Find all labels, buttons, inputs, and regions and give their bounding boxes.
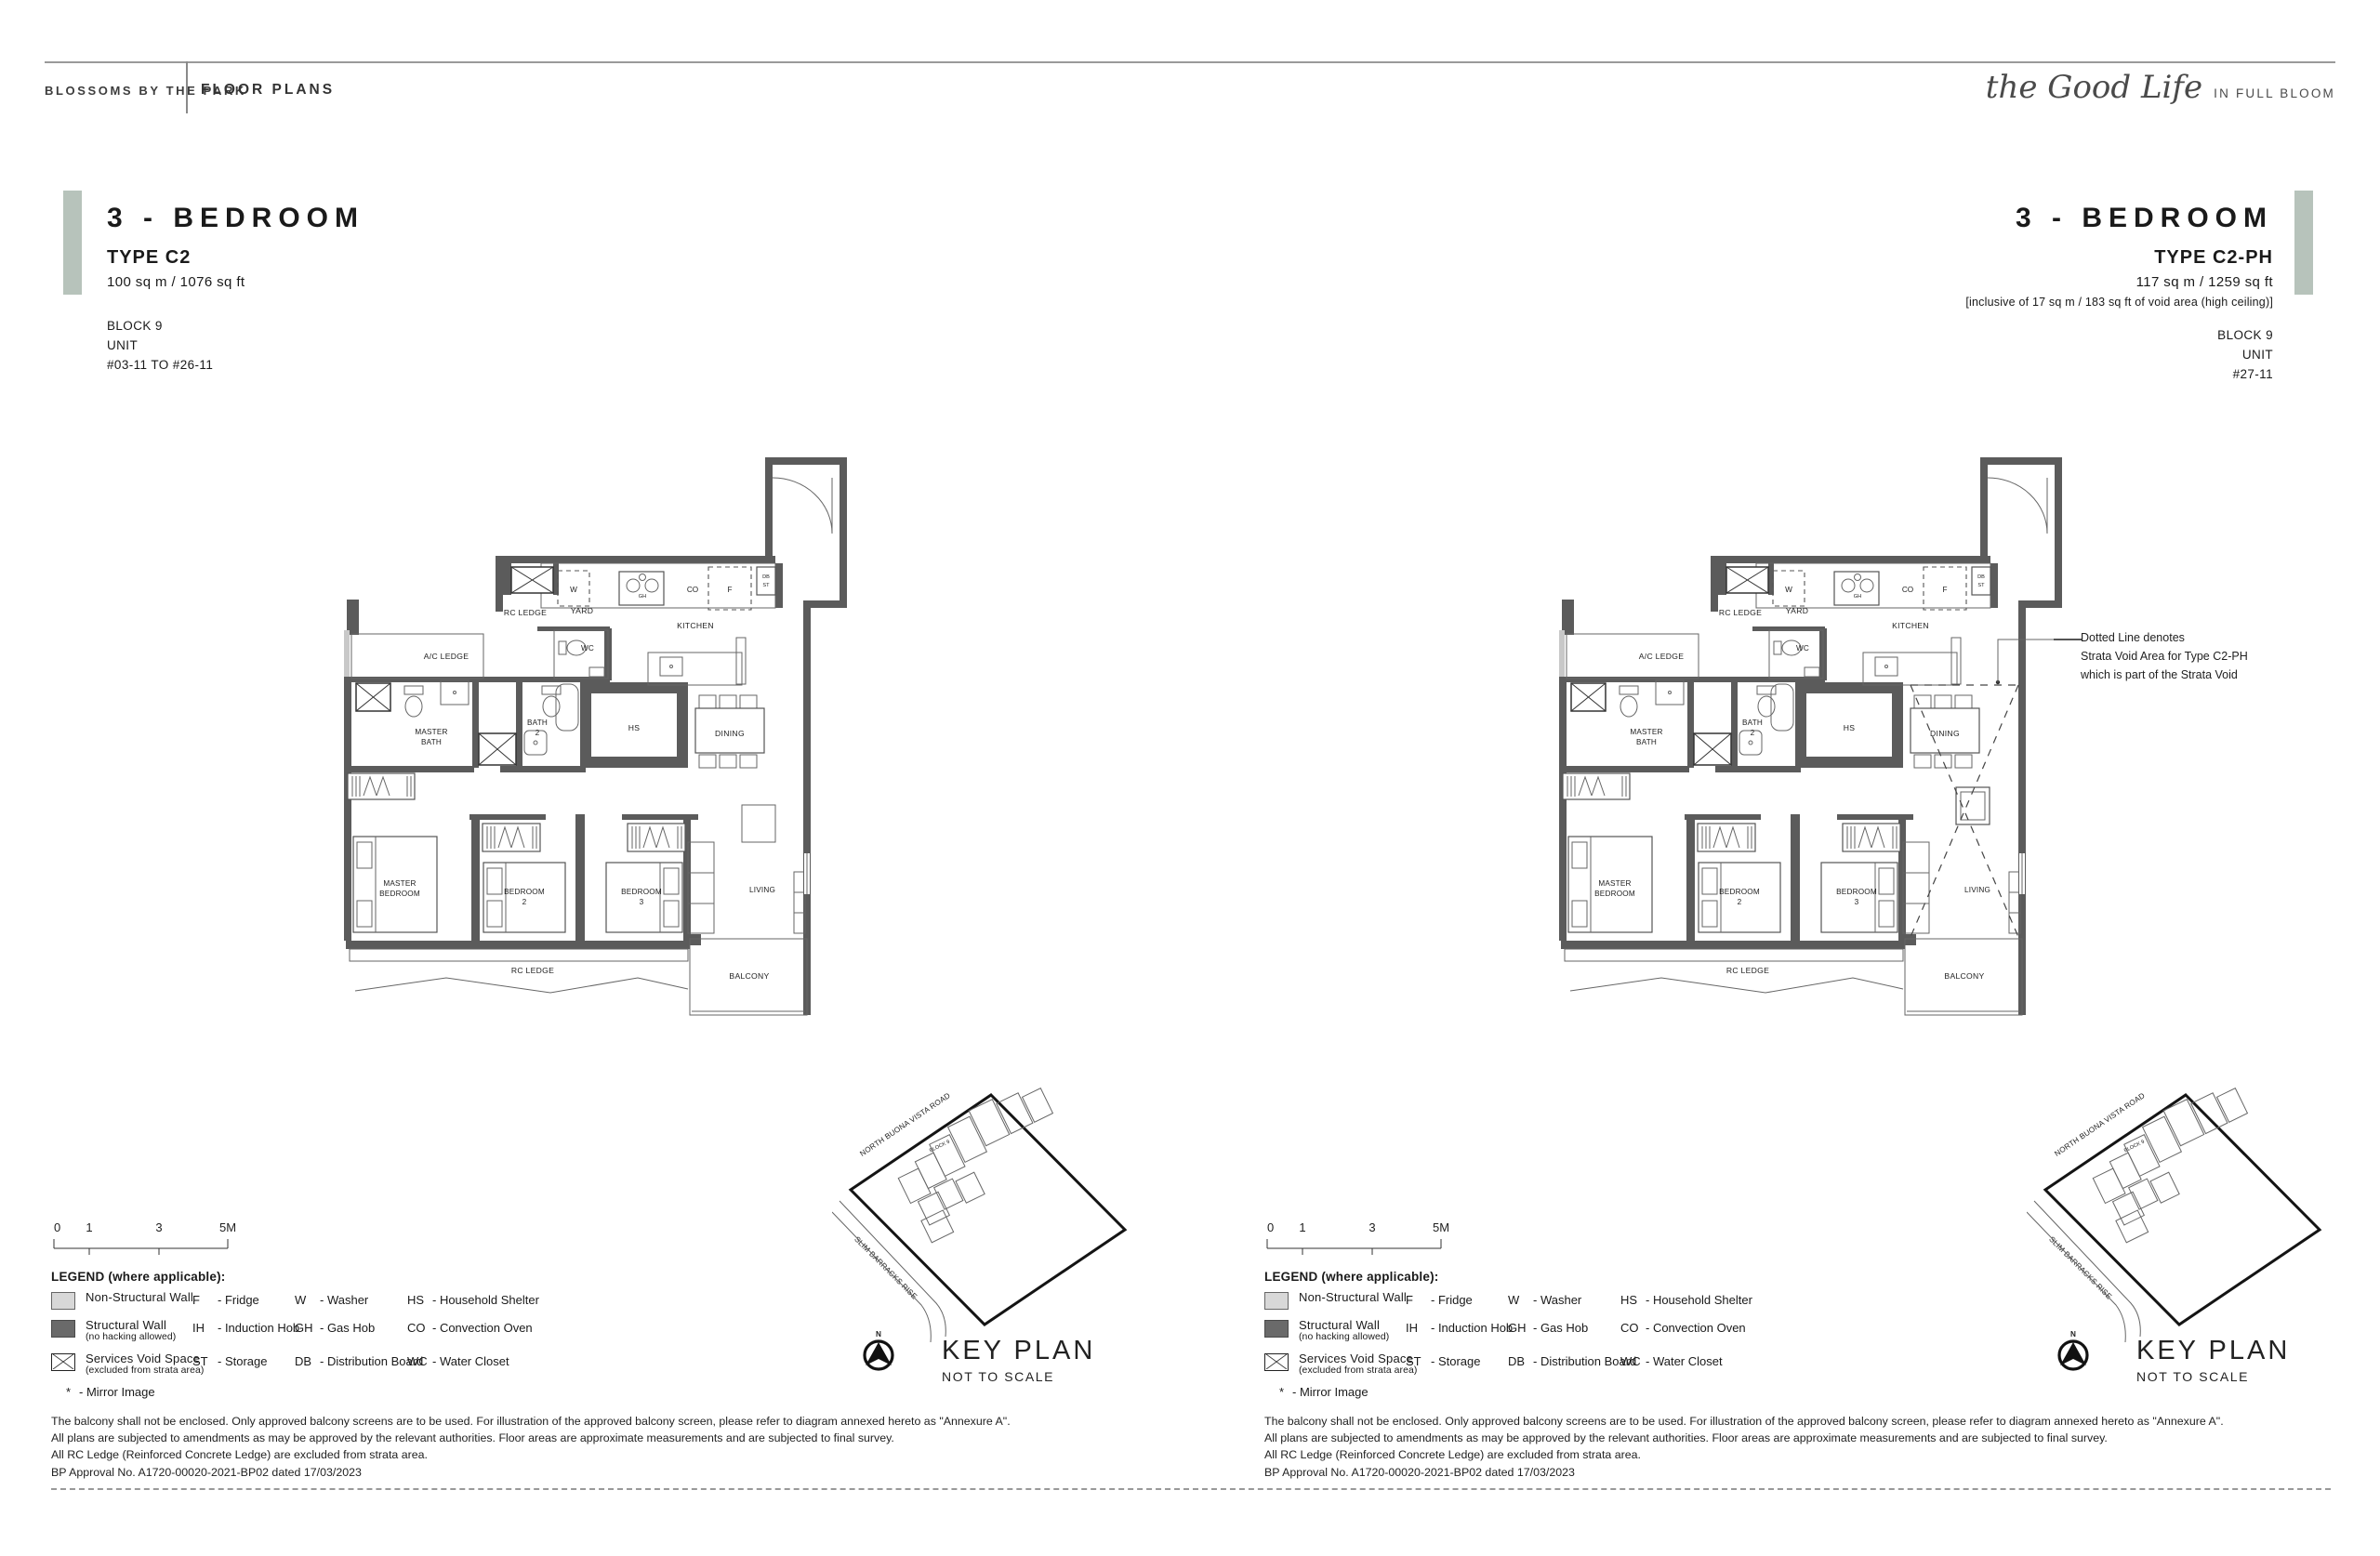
legend: Non-Structural WallStructural Wall(no ha… xyxy=(1264,1292,1785,1413)
appliance-washer: W xyxy=(570,586,577,594)
disclaimer-line: The balcony shall not be enclosed. Only … xyxy=(1264,1413,2361,1430)
key-plan: BLOCK 9NORTH BUONA VISTA ROADSLIM BARRAC… xyxy=(832,1060,1148,1422)
legend-abbr-st: ST- Storage xyxy=(1406,1354,1480,1368)
legend-label: Structural Wall(no hacking allowed) xyxy=(86,1318,176,1342)
appliance-db: DB xyxy=(762,574,770,580)
scale-label: 3 xyxy=(155,1220,162,1234)
room-label-yard: YARD xyxy=(1786,606,1808,615)
disclaimer-line: All plans are subjected to amendments as… xyxy=(1264,1430,2361,1446)
appliance-gas-hob: GH xyxy=(639,594,646,600)
legend-abbr-db: DB- Distribution Board xyxy=(295,1354,423,1368)
room-label-bedroom-2: BEDROOM xyxy=(504,888,545,896)
disclaimer: The balcony shall not be enclosed. Only … xyxy=(1264,1413,2361,1481)
structural-wall-swatch xyxy=(51,1320,75,1338)
room-label-bedroom-3: 3 xyxy=(1855,898,1859,906)
room-label-living: LIVING xyxy=(1964,886,1990,894)
north-compass-icon xyxy=(2059,1341,2087,1369)
unit-range: #27-11 xyxy=(2217,364,2273,384)
area-label: 117 sq m / 1259 sq ft xyxy=(2136,274,2273,290)
non-structural-wall-swatch xyxy=(51,1292,75,1310)
room-label-wc: WC xyxy=(1796,644,1809,653)
room-label-yard: YARD xyxy=(571,606,593,615)
legend-label: Services Void Space(excluded from strata… xyxy=(86,1352,204,1376)
floor-plan-type-c2: WGHCOFDBSTRC LEDGEYARDKITCHENWCA/C LEDGE… xyxy=(342,455,863,1032)
legend-abbr-hs: HS- Household Shelter xyxy=(407,1293,539,1307)
panel-type-c2: 3 - BEDROOM TYPE C2 100 sq m / 1076 sq f… xyxy=(37,0,1125,1556)
appliance-db: DB xyxy=(1977,574,1985,580)
room-label-dining: DINING xyxy=(715,729,745,738)
appliance-fridge: F xyxy=(727,586,732,594)
appliance-gas-hob: GH xyxy=(1854,594,1861,600)
legend-abbr-wc: WC- Water Closet xyxy=(407,1354,509,1368)
room-label-kitchen: KITCHEN xyxy=(1892,621,1929,630)
disclaimer-line: BP Approval No. A1720-00020-2021-BP02 da… xyxy=(51,1464,1148,1481)
appliance-convection-oven: CO xyxy=(687,586,698,594)
type-label: TYPE C2-PH xyxy=(2154,247,2273,269)
type-label: TYPE C2 xyxy=(107,247,191,269)
legend-mirror-image: *- Mirror Image xyxy=(66,1385,155,1399)
scale-label: 0 xyxy=(1267,1220,1274,1234)
appliance-convection-oven: CO xyxy=(1902,586,1913,594)
strata-note-line: Strata Void Area for Type C2-PH xyxy=(2081,647,2248,666)
key-plan: BLOCK 9NORTH BUONA VISTA ROADSLIM BARRAC… xyxy=(2027,1060,2343,1422)
appliance-washer: W xyxy=(1785,586,1792,594)
appliance-fridge: F xyxy=(1942,586,1947,594)
strata-note-line: which is part of the Strata Void xyxy=(2081,666,2248,684)
room-label-master-bath: MASTER xyxy=(1630,728,1662,736)
strata-void-dashed-area xyxy=(1911,640,2074,937)
structural-wall-swatch xyxy=(1264,1320,1289,1338)
legend-abbr-st: ST- Storage xyxy=(192,1354,267,1368)
legend-abbr-ih: IH- Induction Hob xyxy=(1406,1321,1513,1335)
room-label-rc-ledge-bottom: RC LEDGE xyxy=(511,966,554,975)
unit-range: #03-11 TO #26-11 xyxy=(107,355,213,375)
compass-north-label: N xyxy=(2070,1330,2076,1338)
strata-note-line: Dotted Line denotes xyxy=(2081,628,2248,647)
page-title: 3 - BEDROOM xyxy=(2016,203,2273,234)
legend-abbr-f: F- Fridge xyxy=(192,1293,259,1307)
room-label-master-bath: MASTER xyxy=(415,728,447,736)
legend-label: Services Void Space(excluded from strata… xyxy=(1299,1352,1417,1376)
room-label-master-bedroom: BEDROOM xyxy=(1594,890,1635,898)
disclaimer-line: All plans are subjected to amendments as… xyxy=(51,1430,1148,1446)
north-compass-icon xyxy=(865,1341,892,1369)
disclaimer-line: The balcony shall not be enclosed. Only … xyxy=(51,1413,1148,1430)
room-label-living: LIVING xyxy=(749,886,775,894)
legend-abbr-ih: IH- Induction Hob xyxy=(192,1321,299,1335)
scale-label: 1 xyxy=(1299,1220,1305,1234)
accent-bar xyxy=(2294,191,2313,295)
room-label-bath2: 2 xyxy=(1751,729,1755,737)
room-label-bedroom-3: 3 xyxy=(640,898,644,906)
room-label-rc-ledge-top: RC LEDGE xyxy=(1719,608,1762,617)
services-void-swatch xyxy=(51,1353,75,1371)
room-label-balcony: BALCONY xyxy=(729,971,769,981)
room-label-ac-ledge: A/C LEDGE xyxy=(1639,652,1685,661)
legend: Non-Structural WallStructural Wall(no ha… xyxy=(51,1292,572,1413)
legend-abbr-co: CO- Convection Oven xyxy=(1620,1321,1746,1335)
room-label-master-bedroom: BEDROOM xyxy=(379,890,420,898)
room-label-dining: DINING xyxy=(1930,729,1960,738)
room-label-bedroom-3: BEDROOM xyxy=(1836,888,1877,896)
disclaimer: The balcony shall not be enclosed. Only … xyxy=(51,1413,1148,1481)
services-void-swatch xyxy=(1264,1353,1289,1371)
legend-abbr-gh: GH- Gas Hob xyxy=(295,1321,375,1335)
room-label-rc-ledge-bottom: RC LEDGE xyxy=(1726,966,1769,975)
room-label-bedroom-3: BEDROOM xyxy=(621,888,662,896)
void-area-note: [inclusive of 17 sq m / 183 sq ft of voi… xyxy=(1965,296,2273,309)
floor-plan-drawing: WGHCOFDBSTRC LEDGEYARDKITCHENWCA/C LEDGE… xyxy=(1557,455,2078,1032)
room-label-bath2: BATH xyxy=(527,719,548,727)
area-label: 100 sq m / 1076 sq ft xyxy=(107,274,245,290)
unit-block: BLOCK 9 UNIT #03-11 TO #26-11 xyxy=(107,316,213,375)
scale-bar: 0135M xyxy=(1264,1220,1450,1259)
room-label-master-bath: BATH xyxy=(421,738,442,746)
strata-void-annotation: Dotted Line denotes Strata Void Area for… xyxy=(2081,628,2248,684)
scale-label: 5M xyxy=(219,1220,236,1234)
unit-label: UNIT xyxy=(2217,345,2273,364)
unit-block: BLOCK 9 UNIT #27-11 xyxy=(2217,325,2273,384)
legend-abbr-wc: WC- Water Closet xyxy=(1620,1354,1723,1368)
legend-abbr-w: W- Washer xyxy=(295,1293,368,1307)
block-label: BLOCK 9 xyxy=(2217,325,2273,345)
legend-title: LEGEND (where applicable): xyxy=(1264,1270,1438,1284)
disclaimer-line: BP Approval No. A1720-00020-2021-BP02 da… xyxy=(1264,1464,2361,1481)
block-label: BLOCK 9 xyxy=(107,316,213,336)
room-label-hs: HS xyxy=(1844,723,1856,732)
room-label-kitchen: KITCHEN xyxy=(677,621,714,630)
legend-mirror-image: *- Mirror Image xyxy=(1279,1385,1368,1399)
non-structural-wall-swatch xyxy=(1264,1292,1289,1310)
strata-void-leader xyxy=(2054,639,2082,640)
legend-label: Structural Wall(no hacking allowed) xyxy=(1299,1318,1389,1342)
scale-label: 0 xyxy=(54,1220,60,1234)
floor-plan-page: BLOSSOMS BY THE PARK FLOOR PLANS the Goo… xyxy=(0,0,2380,1556)
building-cluster: BLOCK 9 xyxy=(885,1078,1080,1244)
room-label-hs: HS xyxy=(628,723,641,732)
building-cluster: BLOCK 9 xyxy=(2080,1078,2275,1244)
unit-label: UNIT xyxy=(107,336,213,355)
keyplan-block-label: BLOCK 9 xyxy=(929,1140,951,1154)
scale-label: 5M xyxy=(1433,1220,1449,1234)
room-label-bath2: BATH xyxy=(1742,719,1763,727)
compass-north-label: N xyxy=(876,1330,881,1338)
appliance-st: ST xyxy=(762,583,770,588)
room-label-bedroom-2: BEDROOM xyxy=(1719,888,1760,896)
disclaimer-line: All RC Ledge (Reinforced Concrete Ledge)… xyxy=(51,1446,1148,1463)
legend-abbr-db: DB- Distribution Board xyxy=(1508,1354,1636,1368)
keyplan-title: KEY PLAN xyxy=(942,1336,1095,1365)
legend-abbr-co: CO- Convection Oven xyxy=(407,1321,533,1335)
scale-label: 1 xyxy=(86,1220,92,1234)
keyplan-subtitle: NOT TO SCALE xyxy=(942,1369,1054,1384)
keyplan-block-label: BLOCK 9 xyxy=(2123,1140,2146,1154)
scale-label: 3 xyxy=(1368,1220,1375,1234)
legend-abbr-gh: GH- Gas Hob xyxy=(1508,1321,1588,1335)
keyplan-subtitle: NOT TO SCALE xyxy=(2136,1369,2249,1384)
disclaimer-line: All RC Ledge (Reinforced Concrete Ledge)… xyxy=(1264,1446,2361,1463)
room-label-master-bath: BATH xyxy=(1636,738,1657,746)
legend-abbr-f: F- Fridge xyxy=(1406,1293,1473,1307)
room-label-rc-ledge-top: RC LEDGE xyxy=(504,608,547,617)
room-label-master-bedroom: MASTER xyxy=(1598,879,1631,888)
room-label-bedroom-2: 2 xyxy=(522,898,527,906)
appliance-st: ST xyxy=(1977,583,1985,588)
room-label-master-bedroom: MASTER xyxy=(383,879,416,888)
room-label-bedroom-2: 2 xyxy=(1738,898,1742,906)
floor-plan-type-c2-ph: WGHCOFDBSTRC LEDGEYARDKITCHENWCA/C LEDGE… xyxy=(1557,455,2078,1032)
room-label-bath2: 2 xyxy=(535,729,540,737)
panel-type-c2-ph: 3 - BEDROOM TYPE C2-PH 117 sq m / 1259 s… xyxy=(1232,0,2320,1556)
legend-title: LEGEND (where applicable): xyxy=(51,1270,225,1284)
room-label-ac-ledge: A/C LEDGE xyxy=(424,652,469,661)
scale-bar: 0135M xyxy=(51,1220,237,1259)
keyplan-title: KEY PLAN xyxy=(2136,1336,2290,1365)
room-label-balcony: BALCONY xyxy=(1944,971,1984,981)
bottom-dashed-rule xyxy=(51,1488,2331,1490)
legend-abbr-w: W- Washer xyxy=(1508,1293,1581,1307)
room-label-wc: WC xyxy=(581,644,594,653)
legend-label: Non-Structural Wall xyxy=(1299,1290,1407,1304)
legend-label: Non-Structural Wall xyxy=(86,1290,193,1304)
floor-plan-drawing: WGHCOFDBSTRC LEDGEYARDKITCHENWCA/C LEDGE… xyxy=(342,455,863,1032)
accent-bar xyxy=(63,191,82,295)
legend-abbr-hs: HS- Household Shelter xyxy=(1620,1293,1752,1307)
page-title: 3 - BEDROOM xyxy=(107,203,364,234)
